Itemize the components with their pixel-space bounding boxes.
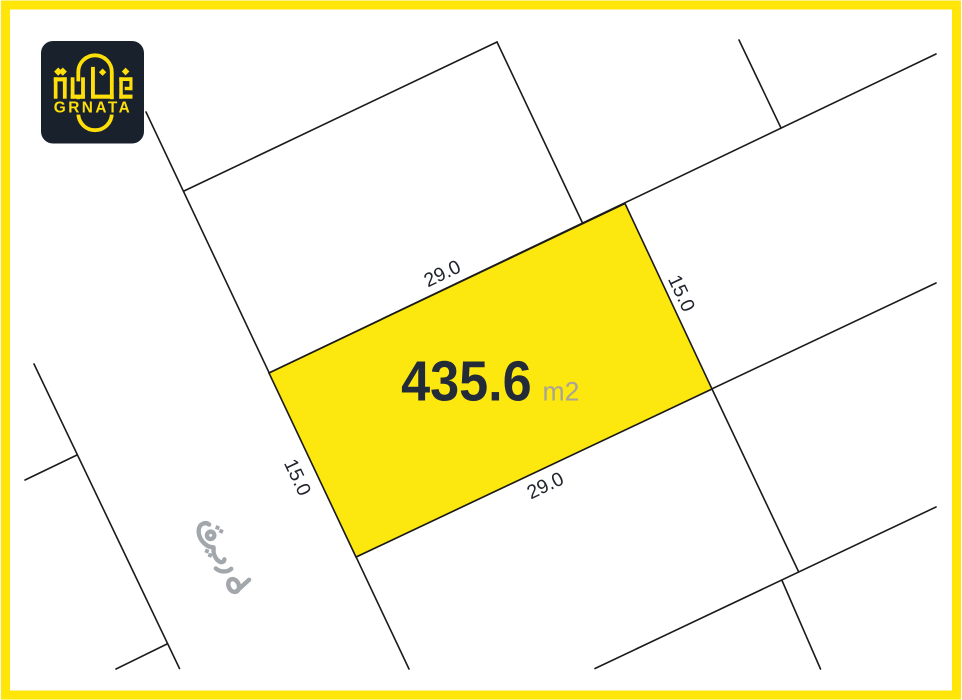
svg-text:435.6: 435.6 xyxy=(401,350,532,413)
svg-text:m2: m2 xyxy=(543,377,580,407)
svg-text:GRNATA: GRNATA xyxy=(54,99,133,116)
